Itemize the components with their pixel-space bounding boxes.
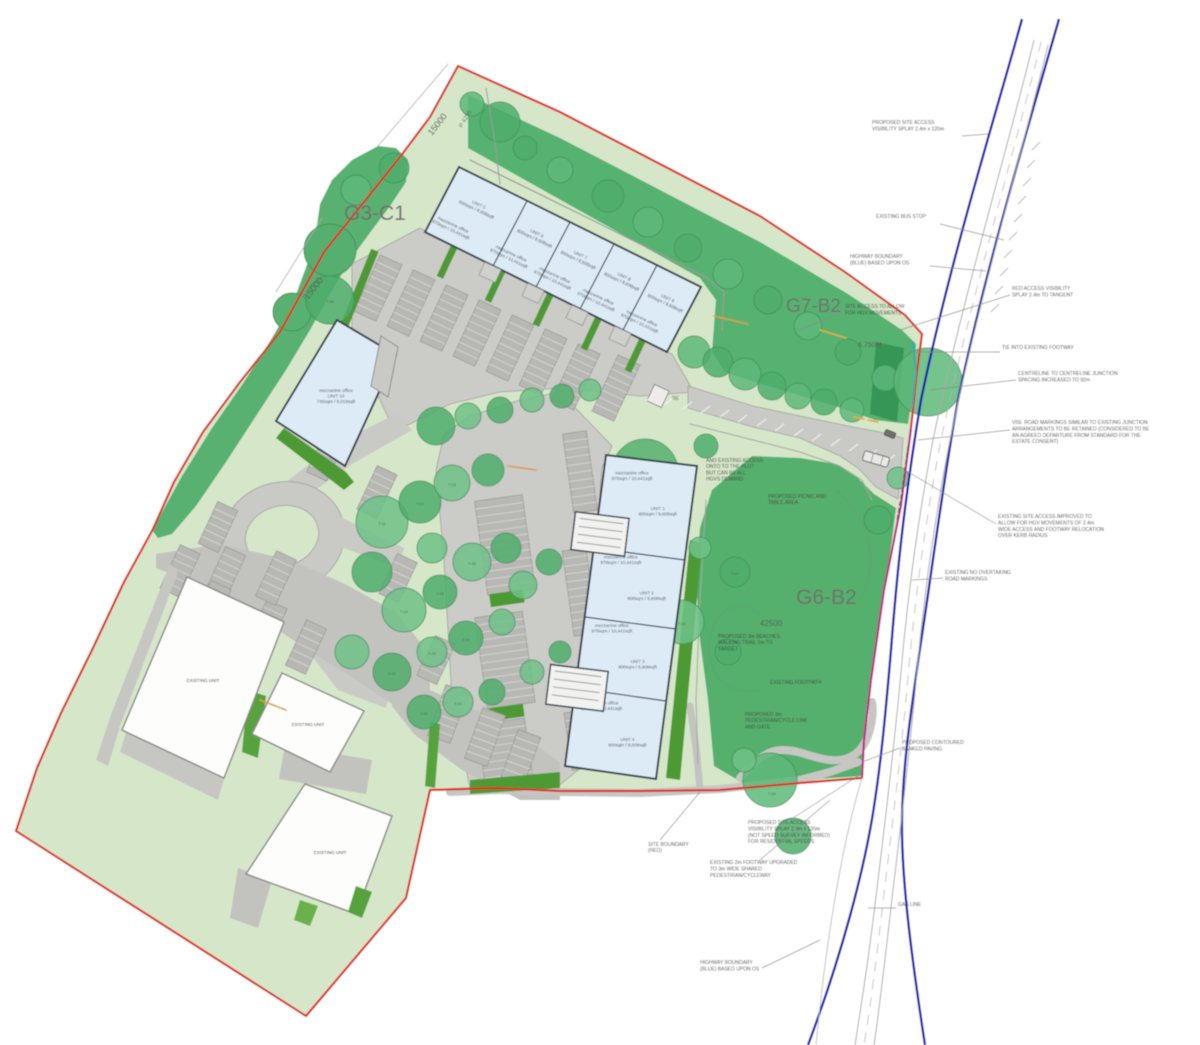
svg-text:OVER KERB RADIUS: OVER KERB RADIUS — [998, 533, 1048, 539]
svg-text:970sqm / 10,441sqft: 970sqm / 10,441sqft — [591, 628, 633, 633]
svg-text:WIDE ACCESS AND FOOTWAY RELOCA: WIDE ACCESS AND FOOTWAY RELOCATION — [998, 527, 1104, 533]
svg-text:AND EXISTING ACCESS: AND EXISTING ACCESS — [706, 458, 764, 464]
svg-text:T-21: T-21 — [454, 702, 462, 706]
svg-text:HIGHWAY BOUNDARY: HIGHWAY BOUNDARY — [850, 254, 904, 260]
svg-text:TABLE AREA: TABLE AREA — [768, 500, 799, 506]
svg-text:PROPOSED CONTOURED: PROPOSED CONTOURED — [902, 740, 964, 746]
svg-text:mezzanine office: mezzanine office — [615, 471, 649, 476]
svg-text:G7-B2: G7-B2 — [786, 296, 841, 317]
svg-text:ROAD MARKINGS: ROAD MARKINGS — [945, 576, 988, 582]
svg-text:6.750M: 6.750M — [858, 342, 882, 349]
svg-text:ESTATE CONSENT): ESTATE CONSENT) — [1012, 439, 1059, 445]
svg-text:PROPOSED SITE ACCESS: PROPOSED SITE ACCESS — [872, 120, 935, 126]
svg-text:UNIT 3: UNIT 3 — [631, 659, 646, 664]
svg-text:mezzanine office: mezzanine office — [319, 388, 353, 393]
svg-text:HGVS DEMAND: HGVS DEMAND — [706, 477, 744, 483]
svg-text:AN AGREED DEPARTURE FROM STAND: AN AGREED DEPARTURE FROM STANDARD FOR TH… — [1012, 433, 1141, 439]
svg-text:T-13: T-13 — [448, 483, 456, 487]
svg-text:UNIT 1: UNIT 1 — [651, 506, 666, 511]
svg-text:FOR RESIDENTIAL SPEEDS: FOR RESIDENTIAL SPEEDS — [748, 839, 815, 845]
svg-text:VISI. ROAD MARKINGS SIMILAR TO: VISI. ROAD MARKINGS SIMILAR TO EXISTING … — [1012, 420, 1148, 426]
svg-text:T-11: T-11 — [378, 522, 385, 526]
svg-text:T-24: T-24 — [768, 792, 776, 796]
svg-text:RED ACCESS VISIBILITY: RED ACCESS VISIBILITY — [1012, 286, 1071, 292]
svg-text:BUT CAN BE ALL: BUT CAN BE ALL — [706, 470, 746, 476]
svg-text:PROPOSED SITE ACCESS: PROPOSED SITE ACCESS — [748, 820, 811, 826]
svg-text:42500: 42500 — [760, 619, 783, 628]
svg-text:EXISTING UNIT: EXISTING UNIT — [314, 850, 347, 855]
svg-text:TO 3m WIDE SHARED: TO 3m WIDE SHARED — [710, 866, 762, 872]
svg-text:T-17: T-17 — [388, 672, 396, 676]
svg-text:T-23: T-23 — [678, 622, 686, 626]
svg-text:HIGHWAY BOUNDARY: HIGHWAY BOUNDARY — [700, 960, 754, 966]
svg-text:970sqm / 10,441sqft: 970sqm / 10,441sqft — [612, 476, 654, 481]
svg-text:EXISTING NO OVERTAKING: EXISTING NO OVERTAKING — [945, 570, 1011, 576]
svg-text:EXISTING SITE ACCESS IMPROVED: EXISTING SITE ACCESS IMPROVED TO — [998, 514, 1092, 520]
svg-text:SPACING INCREASED TO 92m: SPACING INCREASED TO 92m — [1018, 377, 1090, 383]
svg-text:(RED): (RED) — [648, 848, 662, 854]
svg-text:970sqm / 10,441sqft: 970sqm / 10,441sqft — [600, 560, 642, 565]
svg-text:UNIT 10: UNIT 10 — [328, 394, 345, 399]
svg-text:RE: RE — [672, 396, 680, 402]
svg-text:EXISTING BUS STOP: EXISTING BUS STOP — [876, 214, 927, 220]
svg-text:TIE INTO EXISTING FOOTWAY: TIE INTO EXISTING FOOTWAY — [1002, 345, 1075, 351]
svg-text:GAS LINE: GAS LINE — [898, 902, 922, 908]
svg-text:T-16: T-16 — [468, 562, 476, 566]
svg-text:FOR HGV MOVEMENTS: FOR HGV MOVEMENTS — [845, 310, 902, 316]
svg-text:T-20: T-20 — [420, 712, 428, 716]
svg-text:SITE ACCESS TO ALLOW: SITE ACCESS TO ALLOW — [845, 304, 905, 310]
svg-text:PEDESTRIAN/CYCLE LINK: PEDESTRIAN/CYCLE LINK — [745, 718, 808, 724]
svg-text:745sqm / 8,019sqft: 745sqm / 8,019sqft — [317, 399, 356, 404]
svg-text:G3-C1: G3-C1 — [344, 202, 406, 225]
svg-text:AND GATE: AND GATE — [745, 724, 771, 730]
svg-text:T-26: T-26 — [326, 300, 334, 304]
svg-text:TARGET: TARGET — [718, 646, 738, 652]
svg-text:EXISTING FOOTPATH: EXISTING FOOTPATH — [770, 680, 822, 686]
svg-text:UNIT 2: UNIT 2 — [640, 590, 655, 595]
svg-text:T-22: T-22 — [731, 572, 739, 576]
svg-text:PROPOSED 3m BEACHES: PROPOSED 3m BEACHES — [718, 634, 781, 640]
svg-text:BANKED PAVING: BANKED PAVING — [902, 746, 942, 752]
svg-text:800sqm / 8,608sqft: 800sqm / 8,608sqft — [639, 512, 678, 517]
svg-text:T-14: T-14 — [400, 610, 408, 614]
svg-text:(BLUE) BASED UPON OS: (BLUE) BASED UPON OS — [850, 260, 910, 266]
svg-text:VISIBILITY SPLAY 2.4m x 120m: VISIBILITY SPLAY 2.4m x 120m — [872, 126, 944, 132]
svg-text:EXISTING UNIT: EXISTING UNIT — [292, 722, 325, 727]
svg-text:T-18: T-18 — [428, 652, 436, 656]
svg-text:T-12: T-12 — [416, 502, 424, 506]
svg-text:mezzanine office: mezzanine office — [595, 623, 629, 628]
svg-text:UNIT 4: UNIT 4 — [620, 737, 635, 742]
svg-text:PEDESTRIAN/CYCLEWAY: PEDESTRIAN/CYCLEWAY — [710, 873, 772, 879]
svg-text:VISIBILITY SPLAY 2.4m x 120m: VISIBILITY SPLAY 2.4m x 120m — [748, 826, 820, 832]
svg-text:ARRANGEMENTS TO BE RETAINED (C: ARRANGEMENTS TO BE RETAINED (CONSIDERED … — [1012, 426, 1150, 432]
svg-text:800sqm / 8,608sqft: 800sqm / 8,608sqft — [628, 596, 667, 601]
svg-text:T-15: T-15 — [436, 592, 444, 596]
svg-text:WALKING TRAIL 1m TO: WALKING TRAIL 1m TO — [718, 640, 773, 646]
svg-text:G6-B2: G6-B2 — [796, 586, 857, 609]
svg-text:800sqm / 8,608sqft: 800sqm / 8,608sqft — [608, 743, 647, 748]
svg-text:(NOT SPEED SURVEY INFORMED): (NOT SPEED SURVEY INFORMED) — [748, 833, 830, 839]
svg-text:SITE BOUNDARY: SITE BOUNDARY — [648, 842, 689, 848]
svg-text:PROPOSED PICNIC AND: PROPOSED PICNIC AND — [768, 494, 827, 500]
svg-text:ALLOW FOR HGV MOVEMENTS OF 2.4: ALLOW FOR HGV MOVEMENTS OF 2.4m — [998, 520, 1094, 526]
svg-text:EXISTING 2m FOOTWAY UPGRADED: EXISTING 2m FOOTWAY UPGRADED — [710, 860, 798, 866]
svg-text:CENTRELINE TO CENTRELINE JUNCT: CENTRELINE TO CENTRELINE JUNCTION — [1018, 371, 1118, 377]
svg-text:ONTO TO THE PLOT: ONTO TO THE PLOT — [706, 464, 754, 470]
svg-text:SPLAY 2.4m TO TANGENT: SPLAY 2.4m TO TANGENT — [1012, 292, 1073, 298]
svg-text:EXISTING UNIT: EXISTING UNIT — [187, 678, 220, 683]
svg-text:PROPOSED 3m: PROPOSED 3m — [745, 712, 782, 718]
svg-text:800sqm / 8,608sqft: 800sqm / 8,608sqft — [619, 665, 658, 670]
svg-text:(BLUE) BASED UPON OS: (BLUE) BASED UPON OS — [700, 966, 760, 972]
svg-text:T-19: T-19 — [462, 638, 470, 642]
